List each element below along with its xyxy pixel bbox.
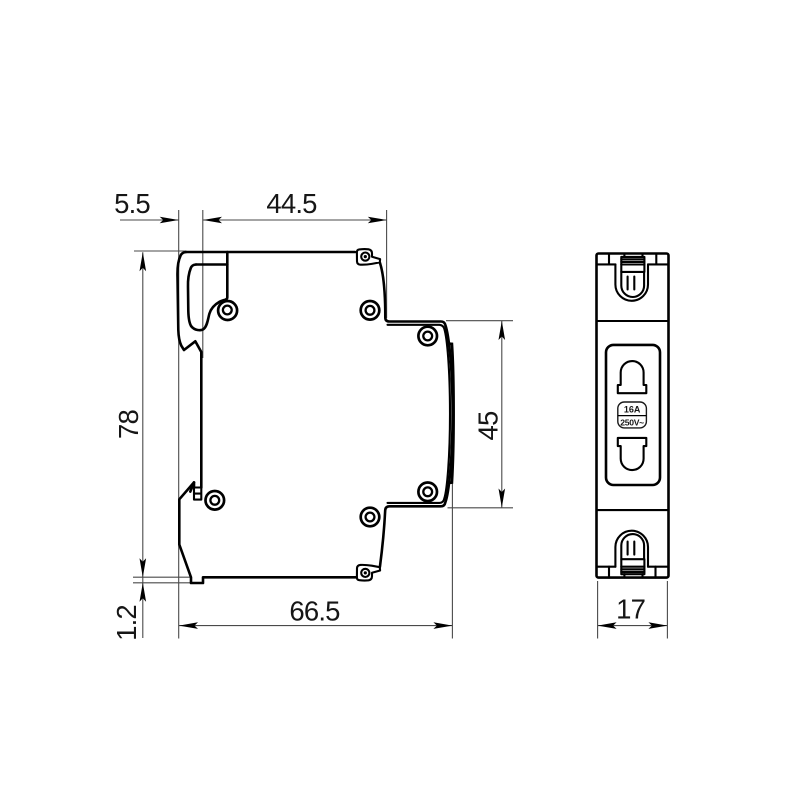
svg-text:16A: 16A — [624, 404, 641, 414]
svg-text:250V~: 250V~ — [620, 417, 644, 427]
svg-text:44.5: 44.5 — [266, 188, 317, 219]
svg-text:1.2: 1.2 — [111, 605, 142, 641]
svg-text:66.5: 66.5 — [289, 596, 340, 627]
svg-text:78: 78 — [113, 410, 144, 439]
svg-text:5.5: 5.5 — [114, 188, 150, 219]
svg-text:45: 45 — [473, 411, 504, 440]
svg-text:17: 17 — [616, 594, 645, 625]
